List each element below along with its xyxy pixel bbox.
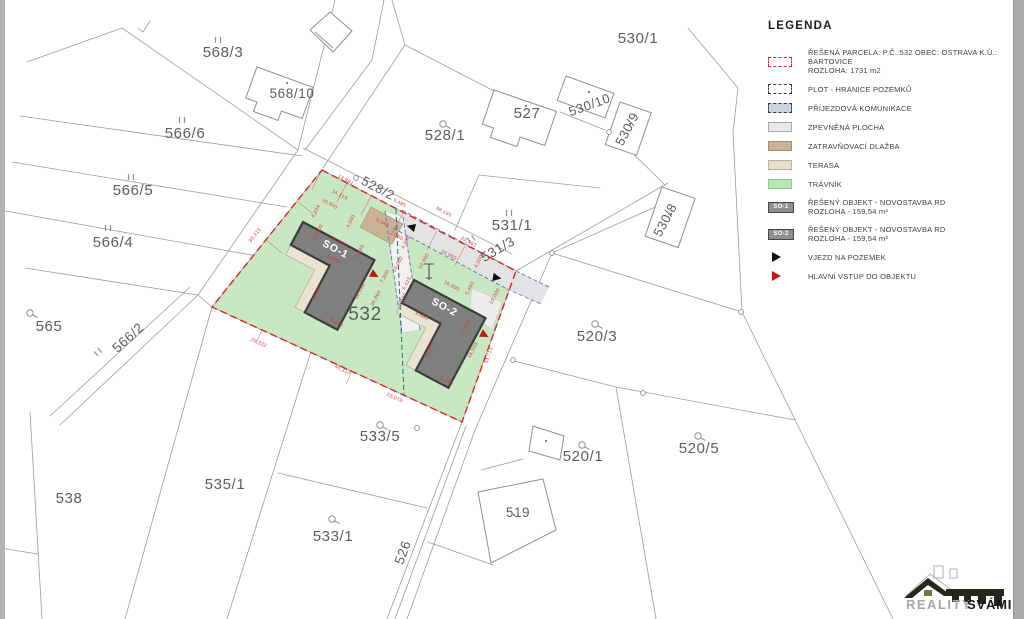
legend-item-11: HLAVNÍ VSTUP DO OBJEKTU [768,271,1008,281]
legend-item-label: ŘEŠENÝ OBJEKT - NOVOSTAVBA RDROZLOHA - 1… [808,198,946,216]
parcel-label-p566_5: 566/5 [113,182,154,199]
legend-items: ŘEŠENÁ PARCELA: P.Č.:532 OBEC: OSTRAVA K… [768,48,1008,281]
boundary-point-icon [607,130,612,135]
parcel-label-p568_10: 568/10 [270,86,315,101]
boundary-point-icon [511,358,516,363]
legend-item-label: ŘEŠENÝ OBJEKT - NOVOSTAVBA RDROZLOHA - 1… [808,225,946,243]
legend-item-3: PŘÍJEZDOVÁ KOMUNIKACE [768,103,1008,113]
parcel-label-p520_5: 520/5 [679,440,720,457]
legend-item-label: PŘÍJEZDOVÁ KOMUNIKACE [808,104,912,113]
parcel-label-p566_6: 566/6 [165,125,206,142]
parcel-label-p526: 526 [392,538,414,566]
page-left-edge [0,0,5,619]
legend-swatch-dashed [768,84,792,94]
legend-item-1: ŘEŠENÁ PARCELA: P.Č.:532 OBEC: OSTRAVA K… [768,48,1008,75]
parcel-label-p519: 519 [506,505,530,520]
scrollbar[interactable] [1013,0,1024,619]
legend-item-7: TRÁVNÍK [768,179,1008,189]
legend-item-label: TERASA [808,161,839,170]
parcel-label-p520_1: 520/1 [563,448,604,465]
building-519 [478,479,556,563]
building-dot-icon [588,91,590,93]
legend-item-label: TRÁVNÍK [808,180,842,189]
building-527 [479,90,556,155]
legend-swatch-solid [768,179,792,189]
land-use-double-tick-icon [216,37,221,43]
parcel-label-p532: 532 [348,304,382,325]
parcel-label-p565: 565 [36,318,63,335]
site-plan-page: 13,98114,31910,0004,8344,0009,48548,1956… [0,0,1024,619]
building-dot-icon [286,82,288,84]
legend-item-label: HLAVNÍ VSTUP DO OBJEKTU [808,272,916,281]
fence-mark [138,21,150,32]
dimension-label: 20,332 [249,337,267,350]
dimension-label: 48,195 [435,205,453,218]
legend-item-4: ZPEVNĚNÁ PLOCHA [768,122,1008,132]
parcel-label-p566_4: 566/4 [93,234,134,251]
realty-logo: REALITY SVÁMI [898,556,1016,612]
legend-item-label: VJEZD NA POZEMEK [808,253,886,262]
legend-title: LEGENDA [768,20,1008,32]
logo-text-reality: REALITY [906,597,972,612]
legend-arrow-icon [772,252,781,262]
dimension-label: 36,215 [248,227,263,244]
land-use-double-tick-icon [106,225,111,231]
boundary-point-icon [739,310,744,315]
land-use-double-tick-icon [129,174,134,180]
land-use-double-tick-icon [507,210,512,216]
legend-item-label: ŘEŠENÁ PARCELA: P.Č.:532 OBEC: OSTRAVA K… [808,48,1008,75]
parcel-label-p568_3: 568/3 [203,44,244,61]
parcel-label-p528_1: 528/1 [425,127,466,144]
legend-item-label: ZPEVNĚNÁ PLOCHA [808,123,884,132]
boundary-point-icon [641,391,646,396]
building-dot-icon [545,440,547,442]
legend-badge-so-1: SO-1 [768,202,794,213]
legend-panel: LEGENDA ŘEŠENÁ PARCELA: P.Č.:532 OBEC: O… [768,20,1008,290]
land-use-double-tick-icon [94,348,102,356]
parcel-label-p533_5: 533/5 [360,428,401,445]
legend-arrow-icon [772,271,781,281]
boundary-point-icon [415,426,420,431]
parcel-label-p520_3: 520/3 [577,328,618,345]
parcel-label-p533_1: 533/1 [313,528,354,545]
boundary-point-icon [550,251,555,256]
parcel-label-p527: 527 [514,105,541,122]
land-use-double-tick-icon [180,117,185,123]
legend-item-10: VJEZD NA POZEMEK [768,252,1008,262]
legend-item-label: PLOT - HRANICE POZEMKŮ [808,85,911,94]
legend-swatch-dashed [768,103,792,113]
parcel-label-p531_1: 531/1 [492,217,533,234]
parcel-label-p566_2: 566/2 [109,320,146,356]
legend-badge-so-2: SO-2 [768,229,794,240]
legend-item-5: ZATRAVŇOVACÍ DLAŽBA [768,141,1008,151]
legend-item-9: SO-2ŘEŠENÝ OBJEKT - NOVOSTAVBA RDROZLOHA… [768,225,1008,243]
legend-swatch-dashed [768,57,792,67]
building-520-1 [529,426,564,460]
parcel-label-p538: 538 [56,490,83,507]
legend-item-2: PLOT - HRANICE POZEMKŮ [768,84,1008,94]
parcel-label-p530_1: 530/1 [618,30,659,47]
legend-item-8: SO-1ŘEŠENÝ OBJEKT - NOVOSTAVBA RDROZLOHA… [768,198,1008,216]
legend-item-6: TERASA [768,160,1008,170]
boundary-point-icon [354,176,359,181]
legend-swatch-solid [768,122,792,132]
well-circle-icon [27,310,38,318]
well-circle-icon [329,516,340,524]
parcel-label-p535_1: 535/1 [205,476,246,493]
legend-swatch-solid [768,141,792,151]
parcel-label-p531_3: 531/3 [478,233,517,264]
legend-swatch-solid [768,160,792,170]
logo-text-svami: SVÁMI [967,597,1012,612]
legend-item-label: ZATRAVŇOVACÍ DLAŽBA [808,142,900,151]
parcel-532-grass [212,170,516,422]
